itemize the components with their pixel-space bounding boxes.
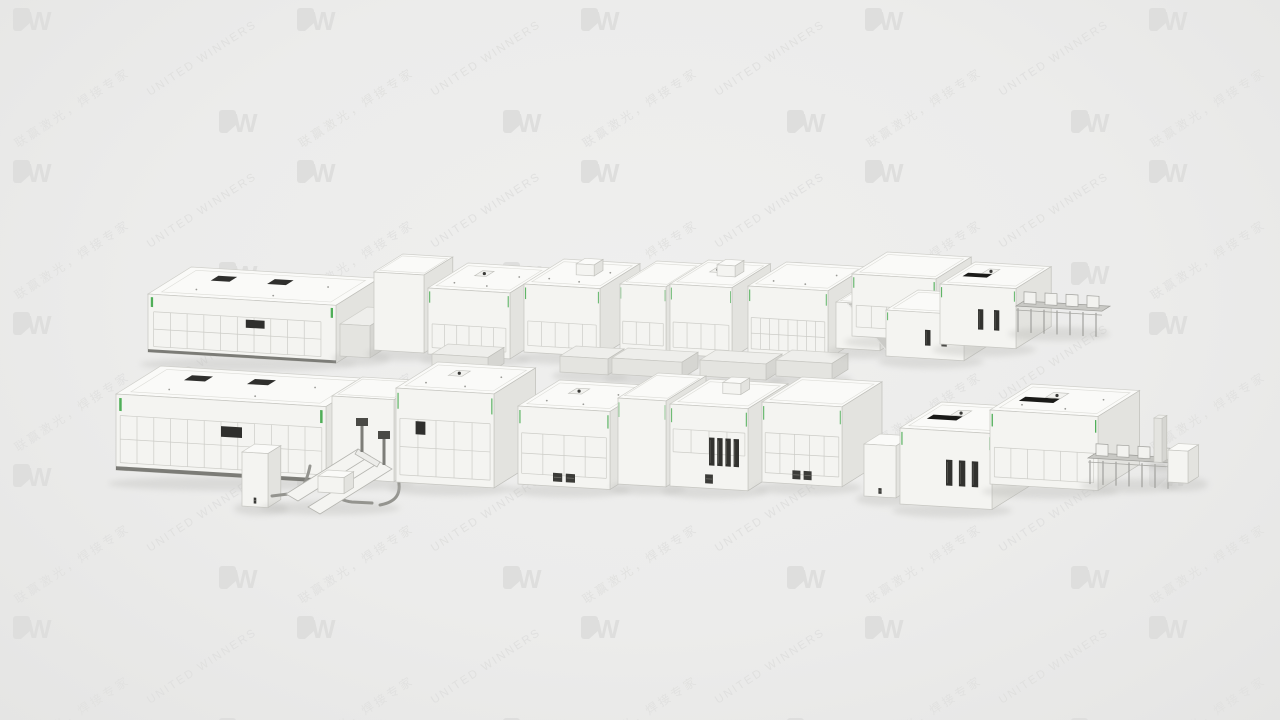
status-led-strip [763, 406, 764, 420]
status-led-strip [598, 292, 599, 304]
status-led-strip [853, 277, 854, 288]
hatch-handle [959, 412, 962, 415]
roof-fitting [582, 403, 584, 405]
status-led-strip [429, 291, 430, 302]
front-face [618, 398, 666, 487]
render-canvas: W UNITED WINNERS 联赢激光，焊接专家 W [0, 0, 1280, 720]
front-face [762, 402, 842, 487]
roof-fitting [609, 272, 611, 274]
status-led-strip [398, 393, 399, 409]
conveyor-station [1066, 294, 1078, 306]
roof-fitting [518, 276, 520, 278]
roof-fitting [327, 286, 329, 288]
floor-shadow [1008, 327, 1110, 341]
status-led-strip [508, 296, 509, 307]
production-line-render: W UNITED WINNERS 联赢激光，焊接专家 W [0, 0, 1280, 720]
status-led-strip [331, 308, 333, 318]
post-cap [378, 431, 390, 439]
conveyor-station [1117, 445, 1129, 457]
status-led-strip [665, 290, 666, 301]
viewing-window [972, 461, 978, 487]
hatch-handle [577, 390, 580, 393]
viewing-window [959, 460, 965, 486]
roof-fitting [454, 282, 456, 284]
front-face [776, 360, 832, 379]
roof-fitting [486, 285, 488, 287]
status-led-strip [151, 297, 153, 307]
status-led-strip [992, 414, 993, 427]
front-face [620, 284, 666, 353]
roof-fitting [836, 275, 838, 277]
status-led-strip [119, 398, 122, 411]
status-led-strip [525, 288, 526, 300]
roof-fitting [168, 389, 170, 391]
scene-layer [108, 252, 1208, 518]
status-led-strip [941, 287, 942, 297]
conveyor-station [1096, 444, 1108, 456]
status-led-strip [746, 413, 747, 427]
roof-fitting [804, 283, 806, 285]
status-led-strip [665, 405, 666, 420]
roof-fitting [254, 395, 256, 397]
front-face [723, 383, 741, 395]
front-face [374, 272, 424, 353]
status-led-strip [749, 290, 750, 302]
conveyor-station [1138, 446, 1150, 458]
status-led-strip [901, 432, 902, 445]
status-led-strip [320, 410, 323, 423]
status-led-strip [840, 411, 841, 425]
hatch-handle [483, 272, 486, 275]
status-led-strip [607, 415, 608, 428]
hatch-handle [1055, 394, 1058, 397]
front-face [340, 324, 370, 358]
post-cap [356, 418, 368, 426]
roof-fitting [425, 382, 427, 384]
roof-fitting [773, 280, 775, 282]
roof-fitting [578, 281, 580, 283]
roof-fitting [314, 387, 316, 389]
front-machine-2 [388, 362, 536, 496]
roof-fitting [1103, 399, 1105, 401]
front-face [560, 356, 608, 375]
front-face [1168, 450, 1188, 483]
front-face [1154, 418, 1162, 463]
control-screen [416, 421, 426, 435]
roof-fitting [618, 394, 620, 396]
status-led-strip [621, 287, 622, 298]
roof-fitting [1021, 404, 1023, 406]
roof-fitting [546, 400, 548, 402]
conveyor-station [1087, 296, 1099, 308]
front-face [576, 264, 594, 276]
status-led-strip [619, 402, 620, 417]
status-led-strip [1095, 420, 1096, 433]
roof-fitting [548, 278, 550, 280]
status-led-strip [519, 410, 520, 423]
viewing-window [946, 460, 952, 486]
status-led-strip [491, 398, 492, 414]
roof-fitting [196, 289, 198, 291]
control-screen [221, 426, 242, 438]
control-screen [246, 320, 265, 329]
roof-fitting [272, 295, 274, 297]
roof-fitting [500, 376, 502, 378]
side-face [268, 446, 281, 508]
status-led-strip [671, 288, 672, 300]
hatch-handle [458, 372, 461, 375]
status-led-strip [826, 294, 827, 306]
status-led-strip [730, 291, 731, 303]
roof-fitting [1064, 408, 1066, 410]
front-face [396, 388, 494, 488]
conveyor-station [1045, 293, 1057, 305]
conveyor-station [1024, 292, 1036, 304]
front-face [717, 265, 735, 277]
status-led-strip [671, 408, 672, 422]
side-face [1188, 445, 1198, 484]
front-face [318, 476, 344, 494]
status-led-strip [887, 312, 888, 320]
side-face [1162, 416, 1167, 463]
status-led-strip [1014, 291, 1015, 301]
hatch-handle [989, 270, 992, 273]
roof-fitting [464, 386, 466, 388]
